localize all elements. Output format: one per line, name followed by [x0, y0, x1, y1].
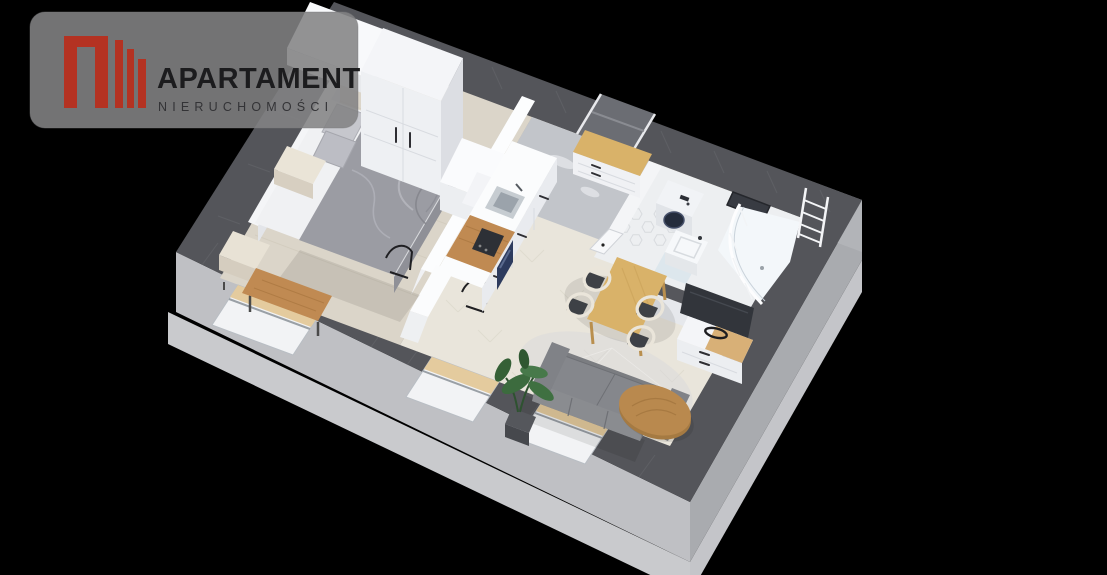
door-handle	[601, 243, 604, 246]
logo-subtitle: NIERUCHOMOŚCI	[158, 99, 333, 114]
render-canvas: APARTAMENT NIERUCHOMOŚCI	[0, 0, 1107, 575]
logo: APARTAMENT NIERUCHOMOŚCI	[30, 12, 361, 128]
logo-title: APARTAMENT	[157, 63, 361, 95]
basin-faucet	[698, 236, 702, 240]
shower-drain	[760, 266, 764, 270]
floor-plan-render: APARTAMENT NIERUCHOMOŚCI	[0, 0, 1107, 575]
